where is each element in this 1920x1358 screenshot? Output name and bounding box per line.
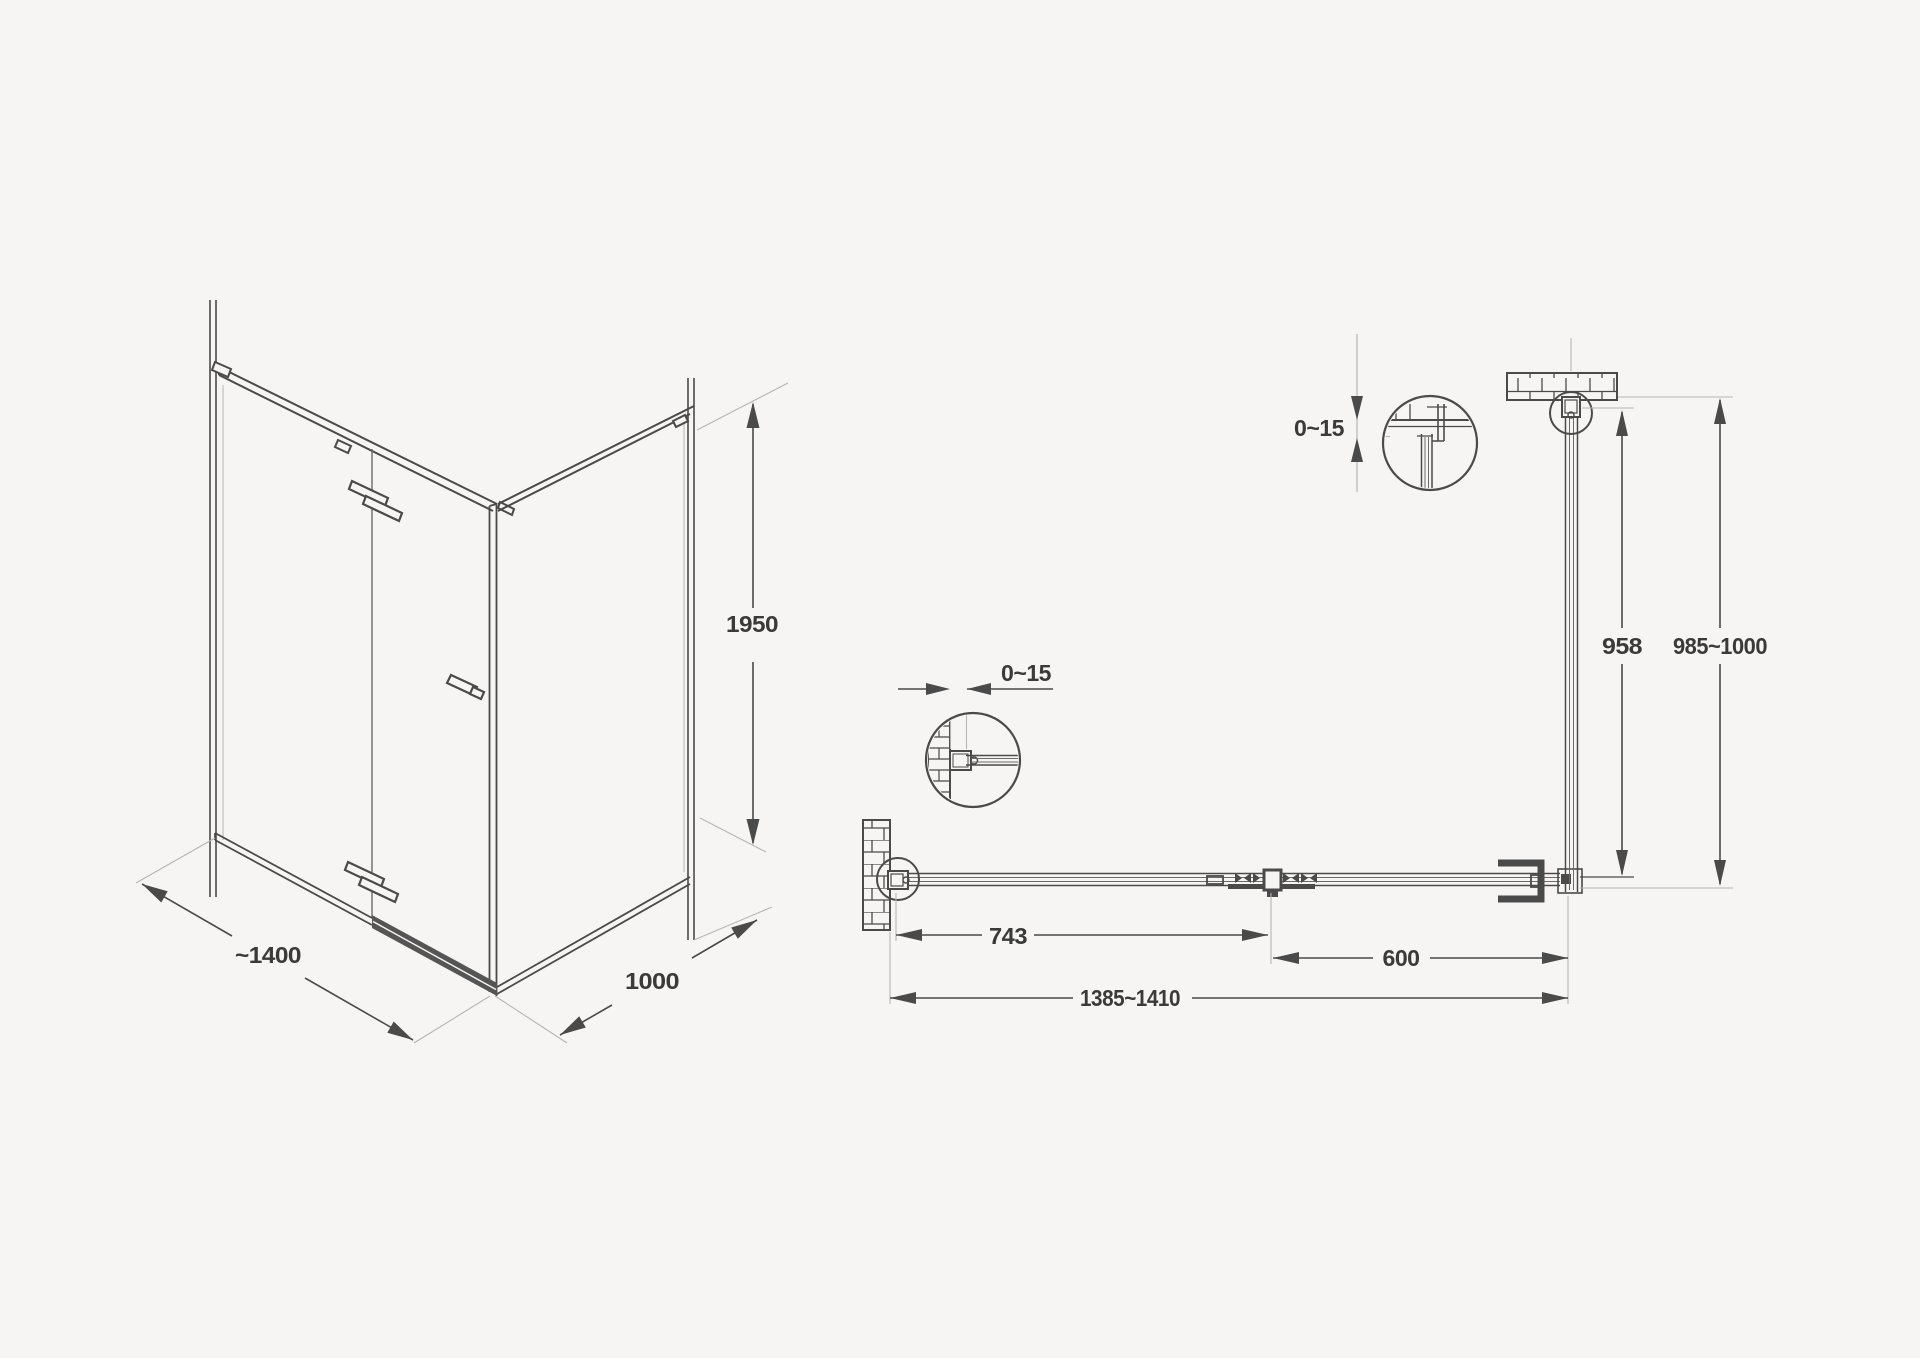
plan-extension-lines (890, 397, 1733, 1004)
dim-depth-inner: 958 (1602, 410, 1643, 876)
dim-label-side-panel-width: 600 (1383, 945, 1420, 971)
detail-top-profile (1432, 404, 1444, 441)
plan-view: 0~15 (863, 334, 1767, 1011)
right-wall-line (688, 378, 694, 940)
iso-view: ~1400 1000 1950 (136, 300, 788, 1043)
detail-top-wall-lines (1384, 399, 1476, 427)
dim-gap-top: 0~15 (1294, 334, 1363, 492)
plan-side-panel-glass (1566, 415, 1578, 892)
detail-top-glass (1417, 434, 1433, 489)
dim-gap-left: 0~15 (898, 660, 1053, 695)
dim-iso-height: 1950 (726, 402, 778, 845)
top-bar-clamp-icon (335, 440, 351, 453)
dim-side-panel-width: 600 (1273, 945, 1568, 971)
door-handle-icon (447, 675, 484, 699)
drawing-canvas: ~1400 1000 1950 (0, 0, 1920, 1358)
dim-label-iso-depth: 1000 (625, 968, 679, 994)
plan-door-glass (890, 874, 1560, 886)
dim-label-iso-width: ~1400 (235, 942, 301, 968)
back-panel-bottom-rail (215, 833, 372, 925)
technical-drawing: ~1400 1000 1950 (0, 0, 1920, 1358)
dim-label-total-width: 1385~1410 (1080, 985, 1180, 1011)
dim-door-width: 743 (896, 923, 1268, 949)
door-bottom-rail (372, 915, 497, 996)
detail-circle-top (1354, 396, 1477, 490)
detail-left-profile (950, 751, 978, 770)
dim-label-gap-top: 0~15 (1294, 415, 1345, 441)
upper-hinge-icon (349, 481, 402, 521)
dim-total-width: 1385~1410 (890, 985, 1568, 1011)
dim-label-door-width: 743 (989, 923, 1027, 949)
plan-top-wall (1507, 373, 1617, 400)
dim-label-depth-total: 985~1000 (1673, 633, 1767, 659)
hinge-pivot-tab (1267, 890, 1278, 897)
side-panel-top-profile (498, 406, 694, 511)
side-bar-clamp-icon (673, 415, 688, 427)
dim-label-depth-inner: 958 (1602, 633, 1643, 659)
dim-label-gap-left: 0~15 (1001, 660, 1052, 686)
dim-depth-total: 985~1000 (1673, 398, 1767, 886)
dim-iso-depth: 1000 (560, 920, 757, 1035)
dim-label-iso-height: 1950 (726, 611, 778, 637)
corner-post (490, 502, 515, 996)
detail-left-gap-lines (951, 691, 967, 749)
iso-extension-lines (136, 383, 788, 1043)
detail-circle-left (926, 691, 1020, 808)
wall-profile-clamp-icon (212, 362, 231, 377)
left-wall-line (210, 300, 216, 897)
hinge-pivot-block (1264, 870, 1281, 890)
